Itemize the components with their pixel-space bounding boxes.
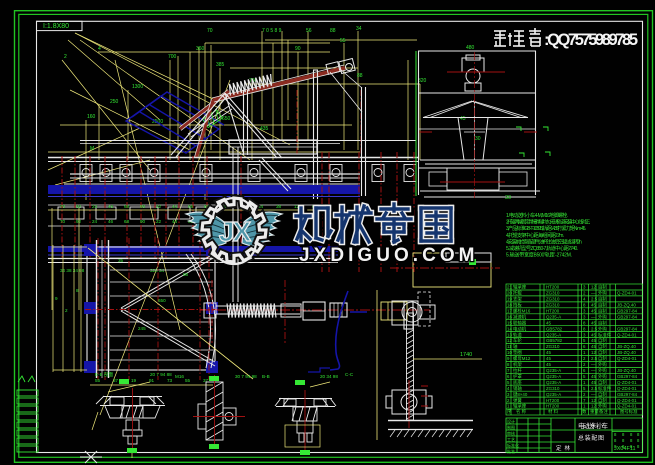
svg-text:—: — [591,392,596,397]
svg-text:66: 66 [188,204,194,209]
svg-text:键8×40: 键8×40 [513,391,528,398]
svg-text:自制: 自制 [598,337,607,344]
svg-text:45: 45 [460,116,466,122]
svg-text:20: 20 [507,291,512,296]
svg-text:拉杆: 拉杆 [513,367,522,374]
svg-text:2: 2 [64,54,67,60]
svg-text:ZG310: ZG310 [546,344,560,349]
svg-text:4.安装前,检查各部件,油杯注油后空载试运转2h.: 4.安装前,检查各部件,油杯注油后空载试运转2h. [506,238,582,245]
svg-text:45: 45 [546,320,551,325]
svg-text:设计: 设计 [507,418,515,424]
svg-text:批准: 批准 [507,448,515,454]
svg-text:HT200: HT200 [546,398,560,403]
svg-text:2.5: 2.5 [591,297,598,302]
svg-text:45: 45 [591,309,596,314]
svg-text:工艺: 工艺 [507,437,515,442]
svg-text:320 34: 320 34 [150,268,164,273]
svg-text:45: 45 [591,332,596,337]
svg-text:挡板: 挡板 [513,302,522,309]
svg-text:自制: 自制 [598,349,607,356]
svg-text:45: 45 [546,350,551,355]
svg-text:11: 11 [507,344,512,349]
svg-text:360: 360 [196,46,205,52]
svg-text:19: 19 [507,297,512,302]
svg-text:650: 650 [158,298,166,303]
svg-text:外购: 外购 [598,290,607,297]
svg-text:22: 22 [156,204,162,209]
svg-text:Q-ZD4-01: Q-ZD4-01 [617,404,637,409]
svg-text:55: 55 [185,378,191,383]
svg-text:GB297-84: GB297-84 [617,374,638,379]
svg-text:22: 22 [156,219,162,224]
svg-text:5.减速机型号ZQ350-7,轨道中心距2740.: 5.减速机型号ZQ350-7,轨道中心距2740. [506,245,578,252]
svg-text:材 料: 材 料 [548,408,559,415]
svg-text:19: 19 [131,378,137,383]
svg-text:自制: 自制 [598,355,607,362]
svg-text:45: 45 [591,303,596,308]
svg-text:9: 9 [55,296,58,301]
svg-text:ZG310: ZG310 [546,297,560,302]
svg-text:C-C: C-C [345,372,354,377]
svg-text:4.托辊支架中心距,每组间距2.7m.: 4.托辊支架中心距,每组间距2.7m. [506,232,564,239]
svg-text:Q-ZD4-01: Q-ZD4-01 [617,398,637,403]
svg-text:90: 90 [140,219,146,224]
svg-text:GB297-84: GB297-84 [617,392,638,397]
svg-text:320: 320 [418,78,427,84]
svg-text:2.5: 2.5 [591,326,598,331]
svg-text:ZG310: ZG310 [546,386,560,391]
svg-text:88: 88 [183,272,189,277]
svg-text:88: 88 [357,73,363,79]
svg-text:700: 700 [168,54,177,60]
svg-text:45: 45 [546,356,551,361]
svg-text:Q-ZD4-01: Q-ZD4-01 [617,332,637,337]
svg-text:B-B: B-B [262,374,270,379]
svg-text:Q-ZD4-01: Q-ZD4-01 [617,380,637,385]
svg-text:38: 38 [276,204,282,209]
svg-text:GB5782: GB5782 [546,326,563,331]
svg-text:88: 88 [330,28,336,34]
svg-text:90: 90 [295,46,301,52]
svg-text:90: 90 [140,204,146,209]
svg-text:自制: 自制 [598,391,607,398]
svg-text:12: 12 [591,404,596,409]
svg-text:ZG310: ZG310 [546,291,560,296]
svg-text:1.电动送料小车4-M,M16地脚螺栓.: 1.电动送料小车4-M,M16地脚螺栓. [506,212,568,219]
svg-text:18: 18 [507,303,512,308]
svg-text:21: 21 [507,285,512,290]
svg-text:电动送料小车: 电动送料小车 [578,421,609,430]
svg-text:14: 14 [507,326,512,331]
svg-text:底座: 底座 [513,379,522,386]
svg-text:Q-ZD4-01: Q-ZD4-01 [617,386,637,391]
svg-text:30 7 94 98: 30 7 94 98 [235,374,257,379]
svg-text:45: 45 [546,362,551,367]
svg-text:自制: 自制 [598,379,607,386]
svg-text:45: 45 [591,344,596,349]
svg-text:重量: 重量 [590,408,599,415]
svg-text:Q235-A: Q235-A [546,380,561,385]
svg-text:250: 250 [110,99,119,105]
svg-text:数: 数 [582,408,587,415]
svg-text:ZG310: ZG310 [546,303,560,308]
svg-text:图号标准: 图号标准 [620,408,638,415]
svg-text:30: 30 [475,136,481,142]
svg-text:12: 12 [591,285,596,290]
svg-text:JB-ZQ.40: JB-ZQ.40 [617,344,636,349]
svg-text:GB5782: GB5782 [546,338,563,343]
svg-text:托辊: 托辊 [513,290,522,297]
svg-text:外购: 外购 [598,367,607,374]
svg-text:HT200: HT200 [546,309,560,314]
svg-text:4: 4 [98,46,101,52]
svg-text:标准化: 标准化 [507,442,519,448]
svg-text:自制: 自制 [598,302,607,309]
svg-text:70: 70 [207,28,213,34]
svg-text:外购: 外购 [598,313,607,320]
svg-text:GB297-84: GB297-84 [617,326,638,331]
svg-text:M16: M16 [175,374,184,379]
svg-text:70: 70 [60,219,66,224]
svg-text:JXDIGUO.COM: JXDIGUO.COM [299,245,475,266]
svg-text:24: 24 [92,219,98,224]
svg-text:电动机: 电动机 [513,325,527,332]
svg-text:HT200: HT200 [546,285,560,290]
svg-text:自制: 自制 [598,284,607,291]
svg-text:外购: 外购 [598,325,607,332]
svg-text:JB-ZQ.40: JB-ZQ.40 [617,350,636,355]
svg-text:总装配图: 总装配图 [578,434,604,442]
svg-text:13: 13 [507,332,512,337]
svg-text:2.5: 2.5 [591,356,598,361]
svg-text:Q-ZD4-01: Q-ZD4-01 [617,356,637,361]
svg-text:JX04F11: JX04F11 [614,446,636,452]
svg-text:Q235-A: Q235-A [546,314,561,319]
svg-text:2.托辊两端固定焊接,焊缝均匀无缺,轨道安装中心线对正.: 2.托辊两端固定焊接,焊缝均匀无缺,轨道安装中心线对正. [506,219,590,226]
svg-text:12: 12 [591,350,596,355]
svg-text:车轮: 车轮 [513,337,522,344]
svg-text:34: 34 [356,26,362,32]
svg-text:480: 480 [466,45,475,51]
svg-text:减速机: 减速机 [513,313,527,320]
svg-text:17: 17 [507,309,512,314]
svg-text:650: 650 [222,116,231,122]
svg-text:46: 46 [108,204,114,209]
svg-text:2.5: 2.5 [591,386,598,391]
svg-text:68: 68 [124,219,130,224]
svg-text:HT200: HT200 [546,404,560,409]
svg-text:JB-ZQ.40: JB-ZQ.40 [617,303,636,308]
svg-text:45: 45 [591,320,596,325]
svg-text:名 称: 名 称 [516,408,527,415]
svg-text:30: 30 [505,195,511,201]
svg-text:GB297-84: GB297-84 [617,309,638,314]
svg-text:JB-ZQ.40: JB-ZQ.40 [617,368,636,373]
svg-text:序: 序 [507,408,512,415]
svg-text:70: 70 [60,204,66,209]
svg-text:16: 16 [507,314,512,319]
svg-text:46: 46 [108,219,114,224]
svg-text:45: 45 [591,380,596,385]
svg-text:JX: JX [219,216,252,247]
svg-text:1300: 1300 [132,84,143,90]
svg-text:—: — [591,291,596,296]
svg-text:15: 15 [507,320,512,325]
svg-text:55: 55 [340,38,346,44]
svg-text:44: 44 [172,219,178,224]
svg-text:3.产品标淮GB-T-10595,'轨距1435'拧紧力矩N: 3.产品标淮GB-T-10595,'轨距1435'拧紧力矩N·m-45. [506,225,586,232]
svg-text:1740: 1740 [460,352,472,358]
svg-text:435: 435 [260,126,269,132]
svg-text:7 0 5 8 9: 7 0 5 8 9 [262,28,282,34]
svg-text:—: — [591,362,596,367]
svg-text:轴承座: 轴承座 [513,284,527,291]
svg-text:45: 45 [591,338,596,343]
svg-text:245: 245 [138,326,146,331]
svg-text:73: 73 [167,378,173,383]
svg-text:E-E 剖面: E-E 剖面 [95,371,114,378]
svg-text:8: 8 [76,288,79,293]
svg-text:12: 12 [591,398,596,403]
svg-text:160: 160 [87,114,96,120]
svg-text:垫圈: 垫圈 [513,349,522,356]
svg-text:20 34 98: 20 34 98 [320,374,338,379]
svg-text:5.输送带宽度B500'轨距'-2742M.: 5.输送带宽度B500'轨距'-2742M. [506,252,572,259]
svg-text:12: 12 [507,338,512,343]
svg-text:68: 68 [124,204,130,209]
svg-text:审核: 审核 [507,430,515,436]
svg-text:螺母M12: 螺母M12 [513,355,531,362]
svg-text:44: 44 [172,204,178,209]
svg-text:Q235-A: Q235-A [546,392,561,397]
svg-text:56: 56 [306,28,312,34]
svg-text:备注: 备注 [599,408,608,415]
svg-text:35: 35 [118,258,124,263]
svg-text:Q-ZD4-01: Q-ZD4-01 [617,291,637,296]
svg-text:20 7 94 88: 20 7 94 88 [150,372,172,377]
svg-text:385: 385 [216,62,225,68]
svg-text:45: 45 [591,374,596,379]
svg-text:2: 2 [65,308,68,313]
svg-text:I:1.8X80: I:1.8X80 [43,23,69,30]
svg-text:—: — [591,368,596,373]
svg-text:Q235-A: Q235-A [546,332,561,337]
svg-text::QQ7575989785: :QQ7575989785 [544,31,638,49]
svg-text:制图: 制图 [507,424,515,430]
svg-text:10: 10 [507,350,512,355]
svg-text:GB297-84: GB297-84 [617,314,638,319]
svg-text:24: 24 [92,204,98,209]
svg-text:37: 37 [113,378,119,383]
svg-text:—: — [591,314,596,319]
svg-text:Q235-A: Q235-A [546,368,561,373]
svg-text:Q235-A: Q235-A [546,374,561,379]
svg-text:M: M [90,146,94,152]
svg-text:55: 55 [95,378,101,383]
